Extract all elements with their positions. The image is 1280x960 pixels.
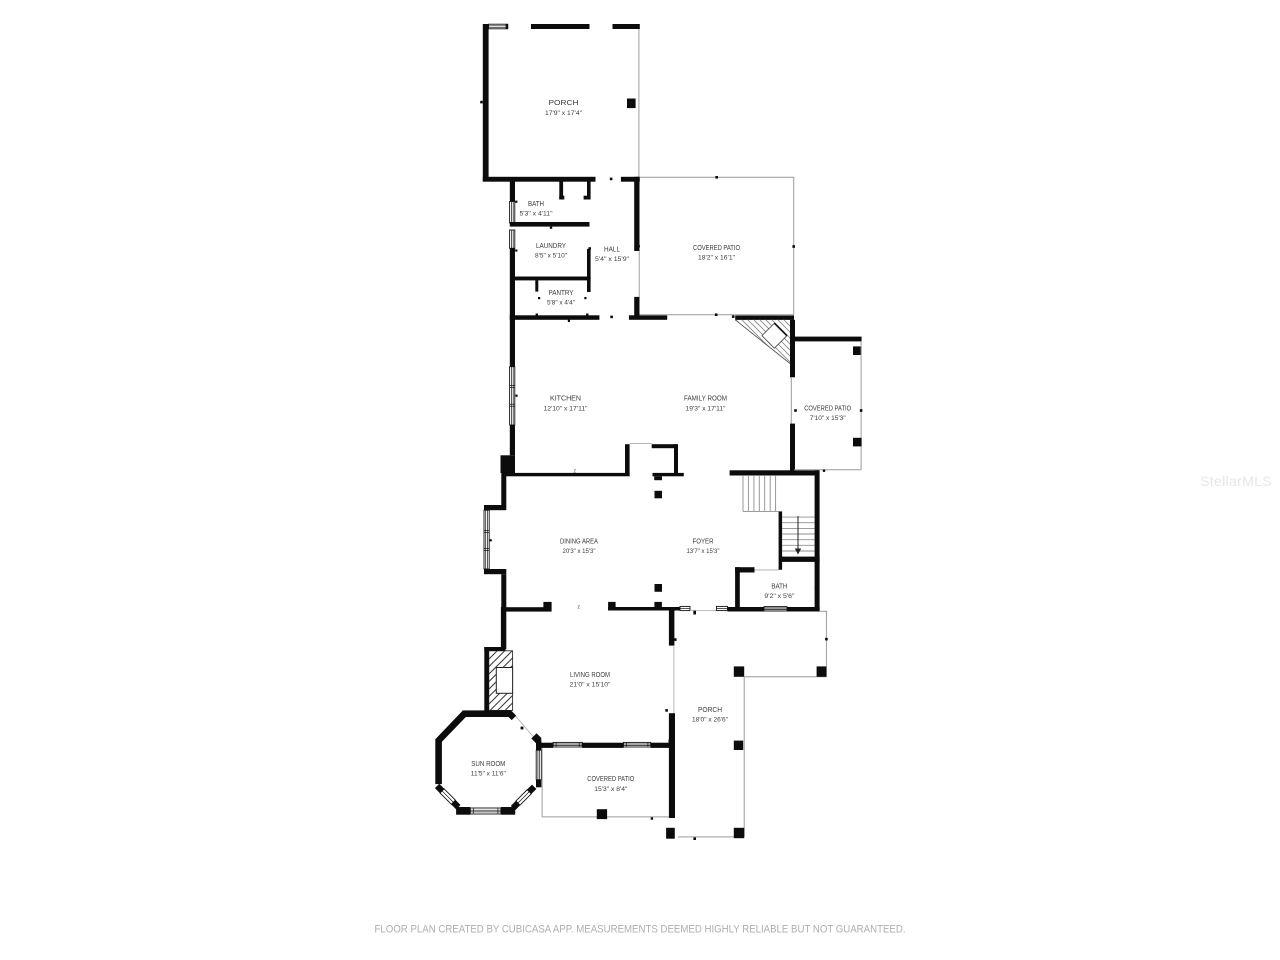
svg-text:17'9" x 17'4": 17'9" x 17'4" <box>545 110 583 117</box>
svg-text:KITCHEN: KITCHEN <box>550 394 581 403</box>
svg-text:COVERED PATIO: COVERED PATIO <box>693 243 740 252</box>
svg-text:5'3" x 4'11": 5'3" x 4'11" <box>520 211 554 218</box>
svg-text:15'3" x 8'4": 15'3" x 8'4" <box>594 786 628 793</box>
svg-text:11'5" x 11'6": 11'5" x 11'6" <box>471 770 507 777</box>
svg-text:19'3" x 17'11": 19'3" x 17'11" <box>686 406 727 413</box>
svg-text:LAUNDRY: LAUNDRY <box>536 241 566 250</box>
svg-text:12'10" x 17'11": 12'10" x 17'11" <box>544 406 589 413</box>
svg-text:PORCH: PORCH <box>549 98 579 107</box>
svg-text:FOYER: FOYER <box>693 537 714 546</box>
svg-text:BATH: BATH <box>771 581 787 590</box>
svg-text:SUN ROOM: SUN ROOM <box>471 759 505 768</box>
svg-text:PORCH: PORCH <box>698 705 722 714</box>
svg-text:18'0" x 26'6": 18'0" x 26'6" <box>692 716 729 723</box>
svg-text:BATH: BATH <box>528 199 544 208</box>
svg-text:COVERED PATIO: COVERED PATIO <box>804 404 851 413</box>
svg-text:PANTRY: PANTRY <box>549 288 574 297</box>
svg-text:18'2" x 16'1": 18'2" x 16'1" <box>698 255 736 262</box>
svg-text:HALL: HALL <box>604 245 620 254</box>
svg-text:20'3" x 15'3": 20'3" x 15'3" <box>563 548 597 555</box>
svg-text:21'0" x 15'10": 21'0" x 15'10" <box>570 682 612 689</box>
svg-text:COVERED PATIO: COVERED PATIO <box>587 774 634 783</box>
svg-text:DINING AREA: DINING AREA <box>560 537 598 546</box>
svg-text:StellarMLS: StellarMLS <box>1200 473 1272 489</box>
svg-text:13'7" x 15'3": 13'7" x 15'3" <box>687 548 721 555</box>
svg-text:8'5" x 5'10": 8'5" x 5'10" <box>535 253 568 260</box>
svg-text:7'10" x 15'3": 7'10" x 15'3" <box>810 415 847 422</box>
svg-text:5'8" x 4'4": 5'8" x 4'4" <box>547 300 576 307</box>
svg-text:9'2" x 5'6": 9'2" x 5'6" <box>764 593 795 600</box>
svg-text:LIVING ROOM: LIVING ROOM <box>570 670 610 679</box>
svg-text:FAMILY ROOM: FAMILY ROOM <box>684 394 727 403</box>
svg-text:5'4" x 15'9": 5'4" x 15'9" <box>595 256 630 263</box>
svg-text:FLOOR PLAN CREATED BY CUBICASA: FLOOR PLAN CREATED BY CUBICASA APP. MEAS… <box>375 924 906 936</box>
